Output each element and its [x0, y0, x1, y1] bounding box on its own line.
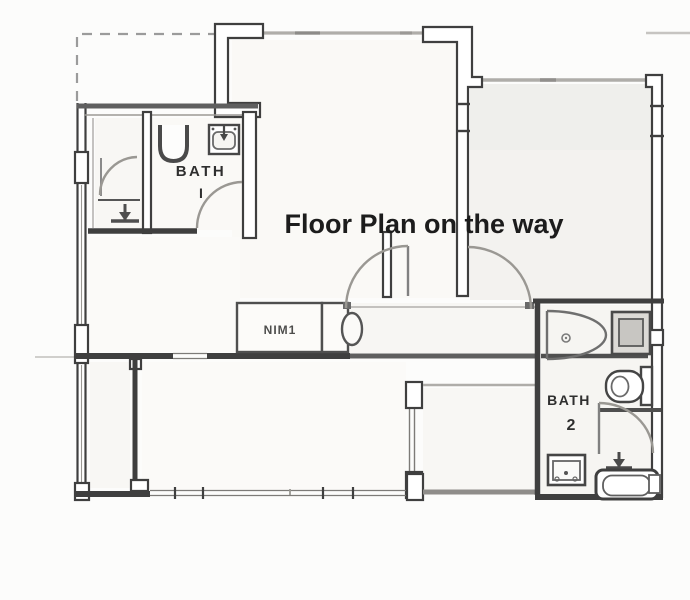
left-outer-wall	[75, 103, 89, 500]
hall-stub-wall	[383, 232, 391, 297]
floor-plan-image: NIM1 BATH I	[0, 0, 690, 600]
partition-end-cap	[406, 382, 422, 408]
floor-plan-drawing: NIM1 BATH I	[0, 0, 690, 600]
counter-label: NIM1	[264, 323, 297, 337]
bath2-label: BATH	[547, 392, 591, 408]
closet-divider-wall	[143, 112, 151, 233]
corner-cap	[131, 480, 148, 491]
kitchen-sink-icon	[342, 313, 362, 345]
mid-wall	[76, 354, 538, 359]
window-end-cap	[75, 152, 88, 183]
bathtub-icon	[596, 470, 660, 499]
bath1-number: I	[199, 185, 203, 201]
toilet-icon	[606, 367, 652, 405]
overlay-title: Floor Plan on the way	[284, 209, 563, 239]
bath2-number: 2	[567, 417, 576, 434]
bath1-label: BATH	[176, 163, 227, 180]
wall-pillar	[407, 474, 423, 500]
bath1-right-wall	[243, 112, 256, 238]
vanity-sink-icon	[548, 455, 585, 485]
bathroom-sink-icon	[209, 125, 239, 154]
toilet-icon	[160, 125, 187, 161]
washer-icon	[612, 312, 650, 354]
door-hinge-block	[525, 302, 534, 309]
